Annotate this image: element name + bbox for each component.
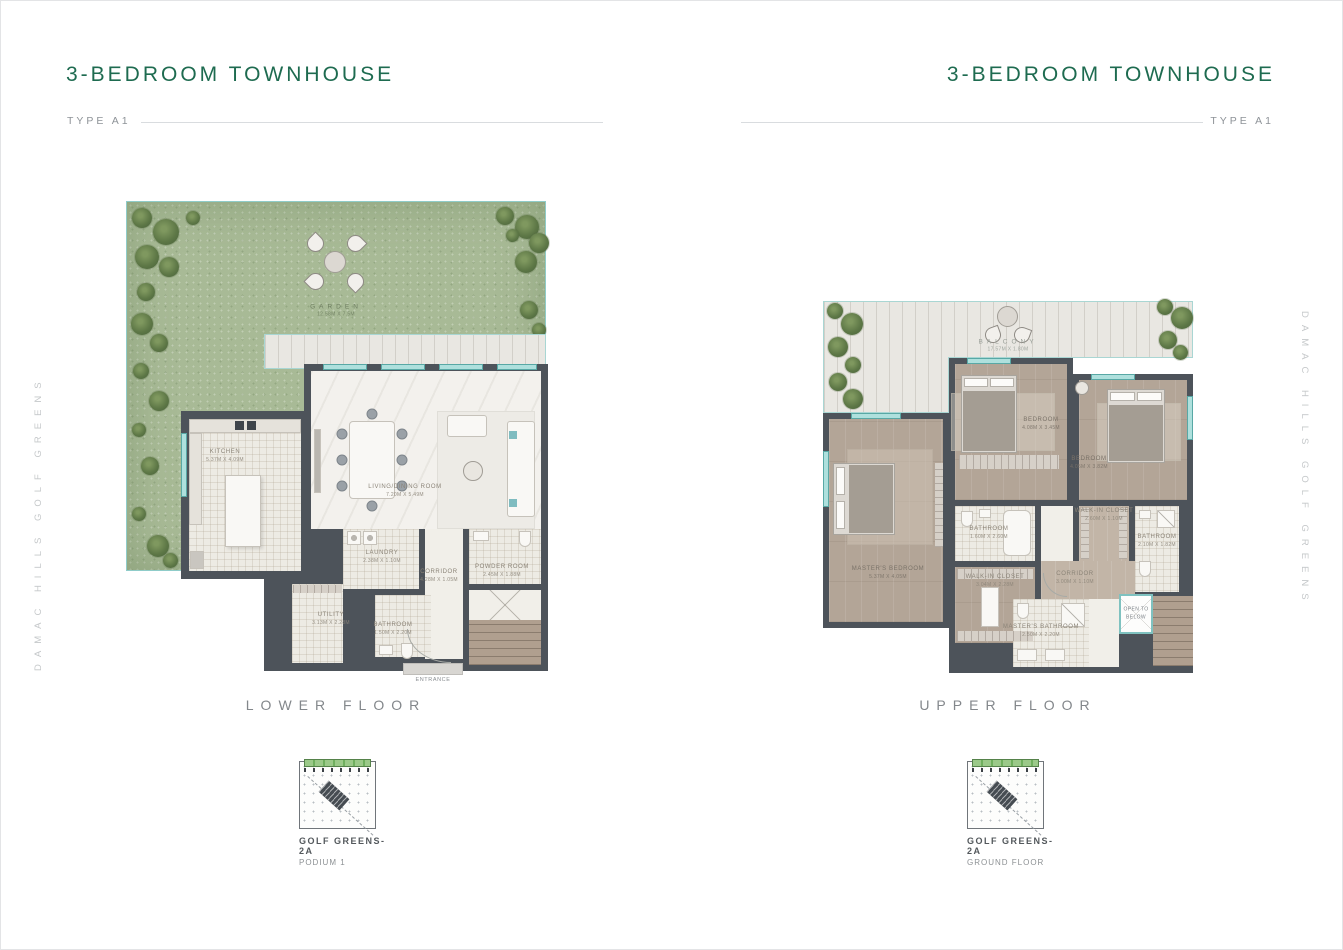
duvet [849, 465, 893, 533]
pillow [990, 378, 1014, 387]
sink [473, 531, 489, 541]
washer [347, 531, 361, 545]
page-title-left: 3-BEDROOM TOWNHOUSE [66, 63, 394, 87]
tree-icon [186, 211, 200, 225]
chair [397, 429, 408, 440]
duvet [963, 391, 1015, 451]
tree-icon [132, 423, 146, 437]
keyplan-unit-marker [319, 781, 350, 811]
tree-icon [515, 251, 537, 273]
window [323, 364, 367, 370]
tree-icon [845, 357, 861, 373]
label-kitchen: KITCHEN 5.37M X 4.09M [206, 448, 244, 464]
tree-icon [132, 208, 152, 228]
tree-icon [1171, 307, 1193, 329]
tree-icon [1173, 345, 1188, 360]
label-powder: POWDER ROOM 2.45M X 1.88M [475, 563, 529, 579]
side-watermark-left: DAMAC HILLS GOLF GREENS [33, 311, 44, 671]
cushion [509, 499, 517, 507]
tree-icon [843, 389, 863, 409]
stairs-lower [469, 620, 541, 665]
wardrobe [935, 463, 943, 547]
kitchen-counter-side [189, 433, 202, 525]
sink [379, 645, 393, 655]
hall-upper [1041, 506, 1073, 561]
dryer [363, 531, 377, 545]
tree-icon [132, 507, 146, 521]
label-corridor: CORRIDOR 4.28M X 1.05M [420, 568, 458, 584]
tree-icon [137, 283, 155, 301]
keyplan-title: GOLF GREENS-2A [967, 836, 1067, 856]
tree-icon [159, 257, 179, 277]
window [1091, 374, 1135, 380]
label-entrance: ENTRANCE [415, 677, 450, 683]
balcony-table [997, 306, 1018, 327]
toilet [1017, 603, 1029, 619]
toilet [1139, 561, 1151, 577]
pillow [1137, 392, 1162, 401]
kitchen-hob [247, 421, 256, 430]
label-garden: GARDEN 12.58M X 7.5M [310, 303, 362, 320]
tree-icon [841, 313, 863, 335]
side-watermark-right: DAMAC HILLS GOLF GREENS [1299, 311, 1310, 671]
tree-icon [506, 229, 519, 242]
label-balcony: BALCONY 17.57M X 1.80M [978, 338, 1037, 355]
wardrobe [959, 455, 1059, 469]
label-bedroom3: BEDROOM 4.05M X 3.82M [1070, 455, 1108, 471]
fridge [190, 551, 204, 569]
kitchen-counter [189, 419, 301, 433]
keyplan-title: GOLF GREENS-2A [299, 836, 399, 856]
sink [979, 509, 991, 518]
window [439, 364, 483, 370]
type-label-right: TYPE A1 [1210, 115, 1274, 127]
window [823, 451, 829, 507]
caption-lower-floor: LOWER FLOOR [246, 697, 426, 713]
tree-icon [163, 553, 178, 568]
pillow [836, 501, 845, 529]
keyplan-outline [299, 761, 376, 829]
label-living: LIVING/DINING ROOM 7.20M X 5.49M [368, 483, 441, 499]
cushion [509, 431, 517, 439]
keyplan-green-strip [304, 759, 371, 767]
keyplan-green-strip [972, 759, 1039, 767]
label-open-to-below: OPEN TO BELOW [1123, 607, 1149, 622]
armchair [447, 415, 487, 437]
label-master-bathroom: MASTER'S BATHROOM 2.50M X 2.20M [1003, 623, 1079, 639]
hall-upper-2 [1089, 599, 1119, 667]
label-master-bedroom: MASTER'S BEDROOM 5.37M X 4.05M [852, 565, 924, 581]
page-title-right: 3-BEDROOM TOWNHOUSE [947, 63, 1275, 87]
label-corridor-upper: CORRIDOR 3.00M X 1.10M [1056, 570, 1094, 586]
tree-icon [141, 457, 159, 475]
shower [1157, 510, 1175, 528]
chair [367, 409, 378, 420]
sink [1045, 649, 1065, 661]
kitchen-sink [235, 421, 244, 430]
entrance-mat [403, 663, 463, 675]
pillow [964, 378, 988, 387]
toilet [401, 643, 413, 659]
label-bathroom2: BATHROOM 1.60M X 2.60M [969, 525, 1008, 541]
keyplan-ticks [972, 768, 1039, 772]
side-table [1075, 381, 1089, 395]
label-walkin-right: WALK-IN CLOSET 2.60M X 1.10M [1075, 507, 1134, 523]
window [1187, 396, 1193, 440]
pillow [836, 467, 845, 495]
keyplan-unit-marker [987, 781, 1018, 811]
stairs-upper [1153, 596, 1193, 666]
kitchen-island [225, 475, 261, 547]
tree-icon [153, 219, 179, 245]
tree-icon [131, 313, 153, 335]
chair [397, 455, 408, 466]
duvet [1109, 405, 1163, 461]
keyplan-ticks [304, 768, 371, 772]
utility-shelf [293, 585, 342, 593]
keyplan-outline [967, 761, 1044, 829]
tree-icon [150, 334, 168, 352]
tree-icon [1157, 299, 1173, 315]
label-laundry: LAUNDRY 2.38M X 1.10M [363, 549, 401, 565]
brochure-page: 3-BEDROOM TOWNHOUSE TYPE A1 3-BEDROOM TO… [0, 0, 1343, 950]
label-bathroom3: BATHROOM 2.10M X 1.82M [1137, 533, 1176, 549]
tree-icon [149, 391, 169, 411]
label-walkin-left: WALK-IN CLOSET 3.04M X 2.28M [966, 573, 1025, 589]
toilet [519, 531, 531, 547]
window [851, 413, 901, 419]
tree-icon [135, 245, 159, 269]
tree-icon [828, 337, 848, 357]
keyplan-subtitle: GROUND FLOOR [967, 858, 1067, 867]
tree-icon [827, 303, 843, 319]
divider-left [141, 122, 603, 123]
garden-table [324, 251, 346, 273]
keyplan-upper: GOLF GREENS-2A GROUND FLOOR [967, 761, 1067, 867]
tree-icon [529, 233, 549, 253]
keyplan-lower: GOLF GREENS-2A PODIUM 1 [299, 761, 399, 867]
coffee-table [463, 461, 483, 481]
stairs-landing [469, 590, 541, 620]
chair [337, 481, 348, 492]
caption-upper-floor: UPPER FLOOR [919, 697, 1096, 713]
tv-console [314, 429, 321, 493]
keyplan-subtitle: PODIUM 1 [299, 858, 399, 867]
closet-island [981, 587, 999, 627]
tree-icon [520, 301, 538, 319]
window [181, 433, 187, 497]
type-label-left: TYPE A1 [67, 115, 131, 127]
sink [1139, 510, 1151, 519]
label-utility: UTILITY 3.13M X 2.28M [312, 611, 350, 627]
label-bedroom2: BEDROOM 4.08M X 3.45M [1022, 416, 1060, 432]
tree-icon [133, 363, 149, 379]
window [967, 358, 1011, 364]
sink [1017, 649, 1037, 661]
divider-right [741, 122, 1203, 123]
tree-icon [496, 207, 514, 225]
window [497, 364, 537, 370]
label-bathroom: BATHROOM 1.50M X 2.20M [373, 621, 412, 637]
window [381, 364, 425, 370]
chair [337, 455, 348, 466]
tree-icon [829, 373, 847, 391]
chair [367, 501, 378, 512]
chair [337, 429, 348, 440]
pillow [1110, 392, 1135, 401]
